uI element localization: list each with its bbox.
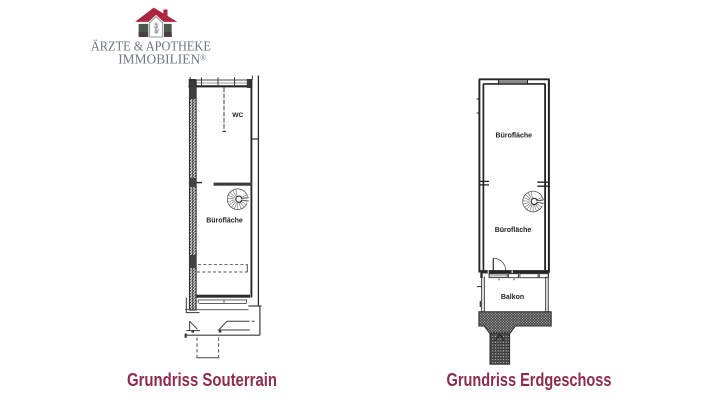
svg-text:Grundriss Souterrain: Grundriss Souterrain	[127, 369, 277, 390]
svg-text:IMMOBILIEN®: IMMOBILIEN®	[118, 52, 206, 67]
svg-text:Grundriss Erdgeschoss: Grundriss Erdgeschoss	[447, 369, 612, 390]
svg-text:Bürofläche: Bürofläche	[496, 132, 533, 139]
svg-text:WC: WC	[232, 112, 243, 119]
svg-text:Bürofläche: Bürofläche	[206, 217, 243, 224]
svg-text:Bürofläche: Bürofläche	[495, 227, 532, 234]
svg-text:Balkon: Balkon	[501, 294, 524, 301]
